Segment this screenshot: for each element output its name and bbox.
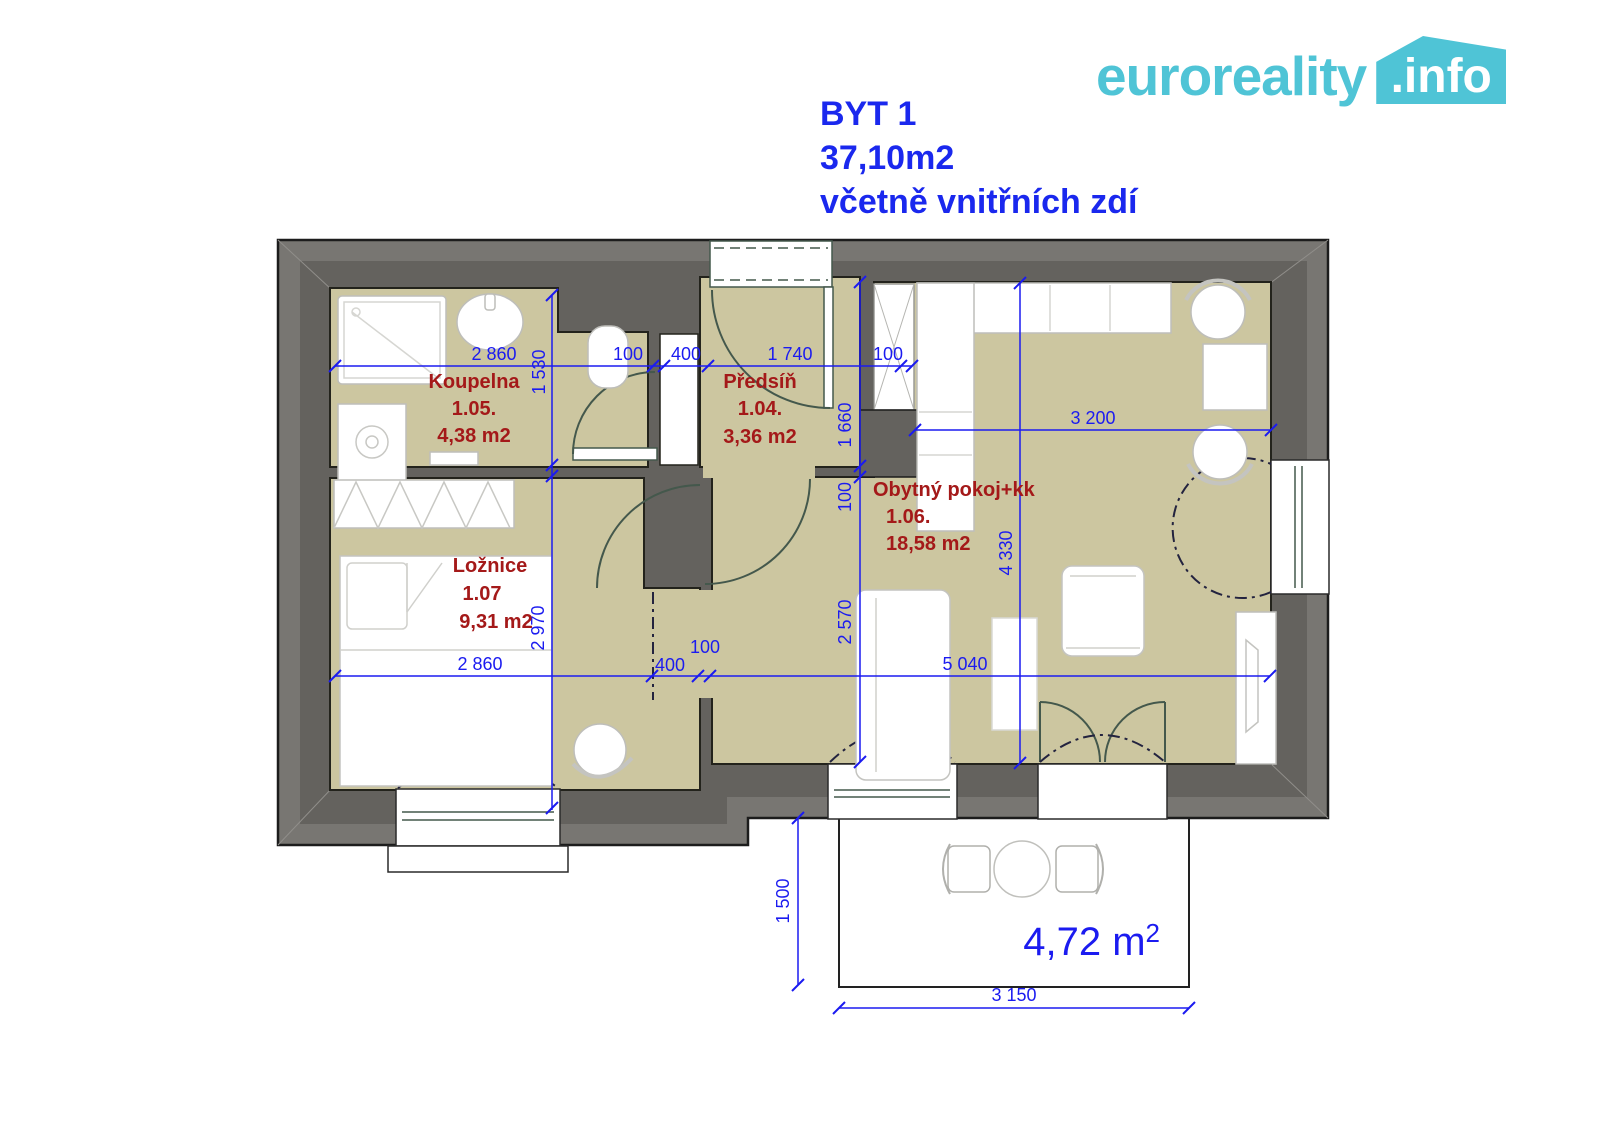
- closet-wall-block: [860, 410, 917, 477]
- room-loznice-name: Ložnice: [453, 555, 527, 577]
- dim-label-living-wall-top: 100: [835, 482, 855, 512]
- sofa: [856, 590, 950, 780]
- bed: [340, 556, 552, 786]
- logo-tld-text: .info: [1391, 53, 1492, 104]
- entrance-door-leaf: [824, 287, 833, 408]
- dim-label-terrace-height: 1 500: [773, 878, 793, 923]
- dim-label-living-mid-height: 2 570: [835, 599, 855, 644]
- french-door: [1038, 764, 1167, 819]
- dim-label-bath-width: 2 860: [471, 344, 516, 364]
- title-note: včetně vnitřních zdí: [820, 180, 1137, 224]
- bedroom-window: [396, 789, 560, 846]
- floor-plan: 4,72 m2: [0, 0, 1600, 1136]
- terrace-area-label: 4,72 m2: [1023, 918, 1160, 964]
- room-obytny-area: 18,58 m2: [886, 533, 971, 555]
- sink-tap: [485, 294, 495, 310]
- dim-label-living-top-width: 3 200: [1070, 408, 1115, 428]
- dim-label-hall-height: 1 660: [835, 402, 855, 447]
- logo-brand-text: euroreality: [1096, 49, 1366, 104]
- dim-label-living-height: 4 330: [996, 530, 1016, 575]
- armchair: [1062, 566, 1144, 656]
- dim-label-bed-niche: 400: [655, 655, 685, 675]
- dim-label-terrace-width: 3 150: [991, 985, 1036, 1005]
- logo: euroreality .info: [1096, 36, 1506, 104]
- east-window: [1271, 460, 1329, 594]
- hall-living-door-opening: [703, 466, 815, 478]
- room-koupelna-area: 4,38 m2: [437, 425, 510, 447]
- room-obytny-name: Obytný pokoj+kk: [873, 479, 1036, 501]
- bedroom-window-sill: [388, 846, 568, 872]
- bathroom-shelf: [430, 452, 478, 465]
- room-predsin-number: 1.04.: [738, 398, 782, 420]
- terrace: 4,72 m2: [839, 800, 1189, 987]
- terrace-table: [994, 841, 1050, 897]
- room-loznice-number: 1.07: [463, 583, 502, 605]
- wardrobe: [334, 480, 514, 528]
- bathroom-door-leaf: [573, 448, 657, 460]
- room-koupelna-number: 1.05.: [452, 398, 496, 420]
- dim-label-living-width: 5 040: [942, 654, 987, 674]
- dim-label-shaft-width: 400: [671, 344, 701, 364]
- dim-label-bed-wall: 100: [690, 637, 720, 657]
- title-apartment: BYT 1: [820, 92, 1137, 136]
- room-obytny-number: 1.06.: [886, 506, 930, 528]
- terrace-chair-left: [948, 846, 990, 892]
- dim-label-hall-wall: 100: [873, 344, 903, 364]
- dining-chair-top: [1191, 285, 1245, 339]
- title-area: 37,10m2: [820, 136, 1137, 180]
- terrace-chair-right: [1056, 846, 1098, 892]
- room-predsin-area: 3,36 m2: [723, 426, 796, 448]
- dim-label-bed-width: 2 860: [457, 654, 502, 674]
- title-block: BYT 1 37,10m2 včetně vnitřních zdí: [820, 92, 1137, 225]
- dining-chair-bottom: [1193, 425, 1247, 479]
- coffee-table: [992, 618, 1037, 730]
- room-koupelna-name: Koupelna: [428, 371, 520, 393]
- tv-screen: [1246, 640, 1258, 732]
- dim-label-wc-wall: 100: [613, 344, 643, 364]
- room-loznice-area: 9,31 m2: [459, 611, 532, 633]
- dining-table: [1203, 344, 1267, 410]
- dim-label-hall-width: 1 740: [767, 344, 812, 364]
- logo-house-badge-icon: .info: [1376, 36, 1506, 104]
- room-predsin-name: Předsíň: [723, 371, 796, 393]
- washing-machine: [338, 404, 406, 482]
- dim-label-bath-height: 1 530: [529, 349, 549, 394]
